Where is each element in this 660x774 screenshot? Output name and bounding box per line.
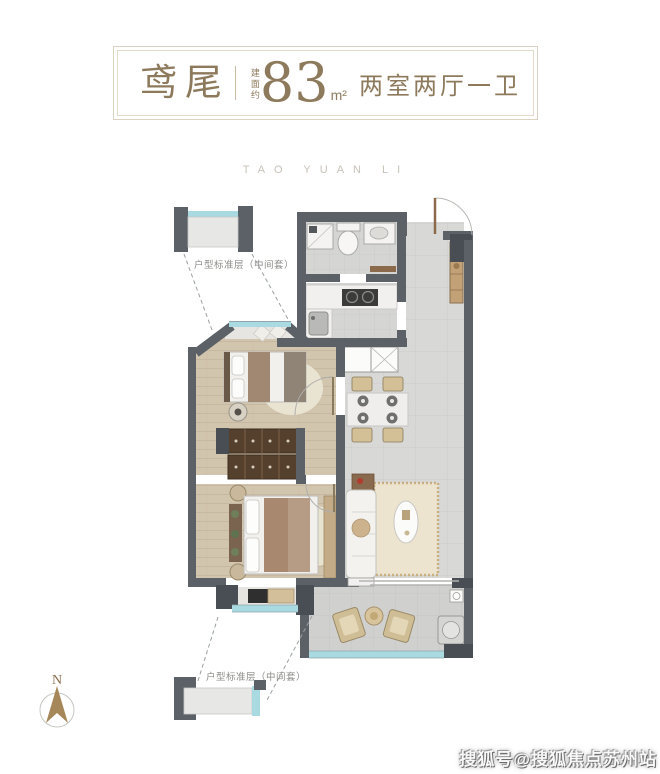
sink-icon [370,227,388,239]
wall-bay-block [296,585,314,615]
wall-east [336,415,345,583]
bay-desk [268,589,294,603]
compass: N [40,673,74,727]
wall-east [336,347,345,377]
plate-icon [390,416,394,420]
balcony-fragment-floor [184,688,252,714]
toilet-tank-icon [337,223,360,231]
bed-blanket [264,498,288,572]
kitchen-sink-icon [309,312,328,335]
bed-throw [248,352,270,402]
wall-bath-divider [366,274,398,282]
wall-left-lower [188,347,196,585]
bay-desk-item [248,589,268,603]
dining-chair [352,428,372,442]
jar-icon [454,263,460,269]
north-arrow-icon [46,686,68,723]
window-glazing [188,211,238,217]
balcony-fragment-floor [188,217,238,247]
hall-closet [344,347,371,372]
dashed-line [266,616,312,702]
wall-living-bottom-corner [452,578,473,588]
headboard [224,352,230,402]
wall-wardrobe-stub [216,428,229,454]
wall-master-door-jamb [296,475,306,484]
window-glazing [309,651,444,658]
plate-icon [361,416,365,420]
wall-corridor-stub [296,428,305,475]
bed-blanket [284,352,306,402]
window-glazing [232,605,298,612]
wall-block [174,207,188,252]
wall-bath-right [397,212,406,302]
floor-plan: 户型标准层（中间套） 户型标准层（中间套） N [0,0,660,774]
pillow-icon [232,379,244,398]
plant-icon [231,510,239,518]
watermark: 搜狐号@搜狐焦点苏州站 [459,745,657,770]
annotation-top: 户型标准层（中间套） [194,259,294,271]
floor-drain-box [450,590,463,602]
plant-icon [231,548,239,556]
toilet-icon [338,231,358,255]
pillow-icon [246,538,259,572]
shower-drain-icon [309,226,317,233]
pillow-icon [246,500,259,534]
wall-left-upper [297,212,306,347]
wall-balcony-corner [444,644,473,658]
wall-top [297,212,407,222]
wall-block [238,206,253,252]
plate-icon [361,399,365,403]
dining-chair [352,377,372,391]
balcony-table-top [370,612,378,620]
basin-icon [443,622,460,639]
plant-icon [231,530,239,538]
plate-icon [390,399,394,403]
dining-chair [383,428,403,442]
window-glazing [252,686,260,716]
annotation-bottom: 户型标准层（中间套） [206,671,306,683]
coffee-table [394,501,418,543]
stove-icon [342,289,378,306]
table-decor-icon [405,531,410,536]
wall-bath-divider [306,274,340,282]
floorplan-page: 鸢尾 建面约 83 m² 两室两厅一卫 TAO YUAN LI [0,0,660,774]
sofa-pillow-icon [352,519,370,537]
towel-bench-icon [370,266,396,272]
master-bay-window [232,605,298,612]
table-decor-icon [402,510,410,520]
pillow-icon [232,356,244,375]
side-table [352,474,374,490]
wall-right [464,240,473,658]
living-room [346,474,438,578]
flower-icon [357,478,363,484]
dining-chair [383,377,403,391]
bed-blanket [288,498,310,572]
faucet-icon [311,316,315,320]
wall-block [174,677,196,688]
adjacent-unit-bottom [174,677,266,720]
compass-north-label: N [52,673,62,688]
stool-center [235,409,242,416]
adjacent-unit-top [174,206,253,252]
dining-table [347,393,408,426]
